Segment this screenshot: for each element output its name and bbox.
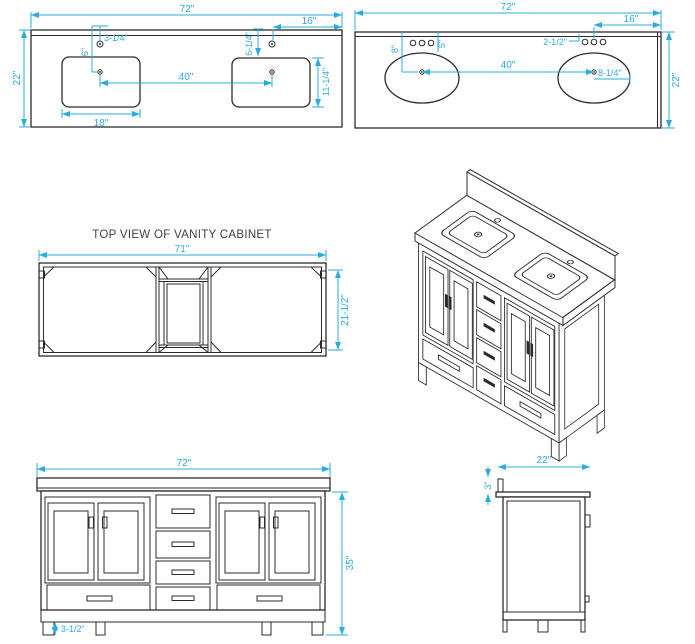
- dim-label: 16": [302, 16, 317, 27]
- dim-label: 6-1/4": [244, 32, 254, 56]
- countertop: [496, 492, 590, 497]
- countertop-rect-sink-drawing: 72" 22" 16" 3-1/4" 6" 40" 6-1/4" 11-1/4"…: [0, 0, 348, 140]
- dim-label: 72": [177, 458, 192, 469]
- dim-depth: 21-1/2": [328, 270, 351, 350]
- cabinet-top-view-drawing: TOP VIEW OF VANITY CABINET 71": [12, 215, 357, 380]
- isometric-view-drawing: [385, 145, 685, 445]
- door-handle: [445, 294, 448, 308]
- side-view-drawing: 22" 3": [460, 440, 695, 644]
- dim-label: 18": [94, 118, 109, 129]
- door-handle: [449, 296, 452, 310]
- hinge-marks: [585, 515, 590, 602]
- dim-width: 72": [355, 2, 661, 30]
- countertop: [37, 478, 330, 491]
- backsplash: [498, 479, 503, 492]
- cabinet-side: [503, 497, 590, 632]
- countertop-slab: [355, 32, 661, 128]
- dim-label: 21-1/2": [340, 294, 351, 326]
- dim-label: 22": [537, 455, 552, 466]
- dim-label: 3-1/4": [104, 33, 128, 43]
- dim-label: 22": [12, 70, 23, 85]
- dim-label: 71": [175, 244, 190, 255]
- dim-backsplash-height: 3": [483, 467, 493, 505]
- cabinet-frame: [39, 263, 326, 356]
- dim-label: 8-1/4": [598, 68, 622, 78]
- dim-label: 16": [624, 14, 639, 25]
- cabinet-body: [41, 491, 325, 635]
- dim-width: 72": [37, 458, 330, 477]
- door-handle: [530, 343, 533, 357]
- dim-toe-kick: 3-1/2": [55, 622, 85, 635]
- legs: [43, 622, 323, 635]
- dim-label: 11-1/4": [321, 68, 331, 96]
- dim-label: 6": [80, 48, 90, 56]
- dim-label: 35": [345, 555, 356, 570]
- dim-depth: 22": [12, 30, 30, 127]
- dim-width: 71": [39, 244, 326, 261]
- dim-height: 35": [326, 492, 356, 635]
- dim-label: 2-1/2": [543, 37, 567, 47]
- dim-label: 72": [501, 2, 516, 13]
- dim-label: 3-1/2": [61, 624, 85, 634]
- dim-label: 72": [180, 4, 195, 15]
- dim-label: 40": [501, 60, 516, 71]
- dim-label: 3": [483, 481, 493, 489]
- dim-depth: 22": [662, 32, 682, 128]
- front-view-drawing: 72": [8, 440, 383, 644]
- dim-width: 72": [31, 4, 342, 28]
- dim-depth: 22": [498, 455, 590, 467]
- vanity-spec-sheet: 72" 22" 16" 3-1/4" 6" 40" 6-1/4" 11-1/4"…: [0, 0, 695, 644]
- door-handle: [527, 340, 530, 354]
- dim-label: 8": [390, 45, 400, 53]
- legs: [503, 620, 585, 632]
- dim-label: 22": [671, 72, 682, 87]
- countertop-oval-sink-drawing: 72" 16" 2-1/2" 8" 5" 40" 8-1/4" 22": [348, 0, 695, 140]
- dim-label: 40": [179, 72, 194, 83]
- dim-label: 5": [437, 40, 447, 48]
- drawing-title: TOP VIEW OF VANITY CABINET: [92, 229, 271, 241]
